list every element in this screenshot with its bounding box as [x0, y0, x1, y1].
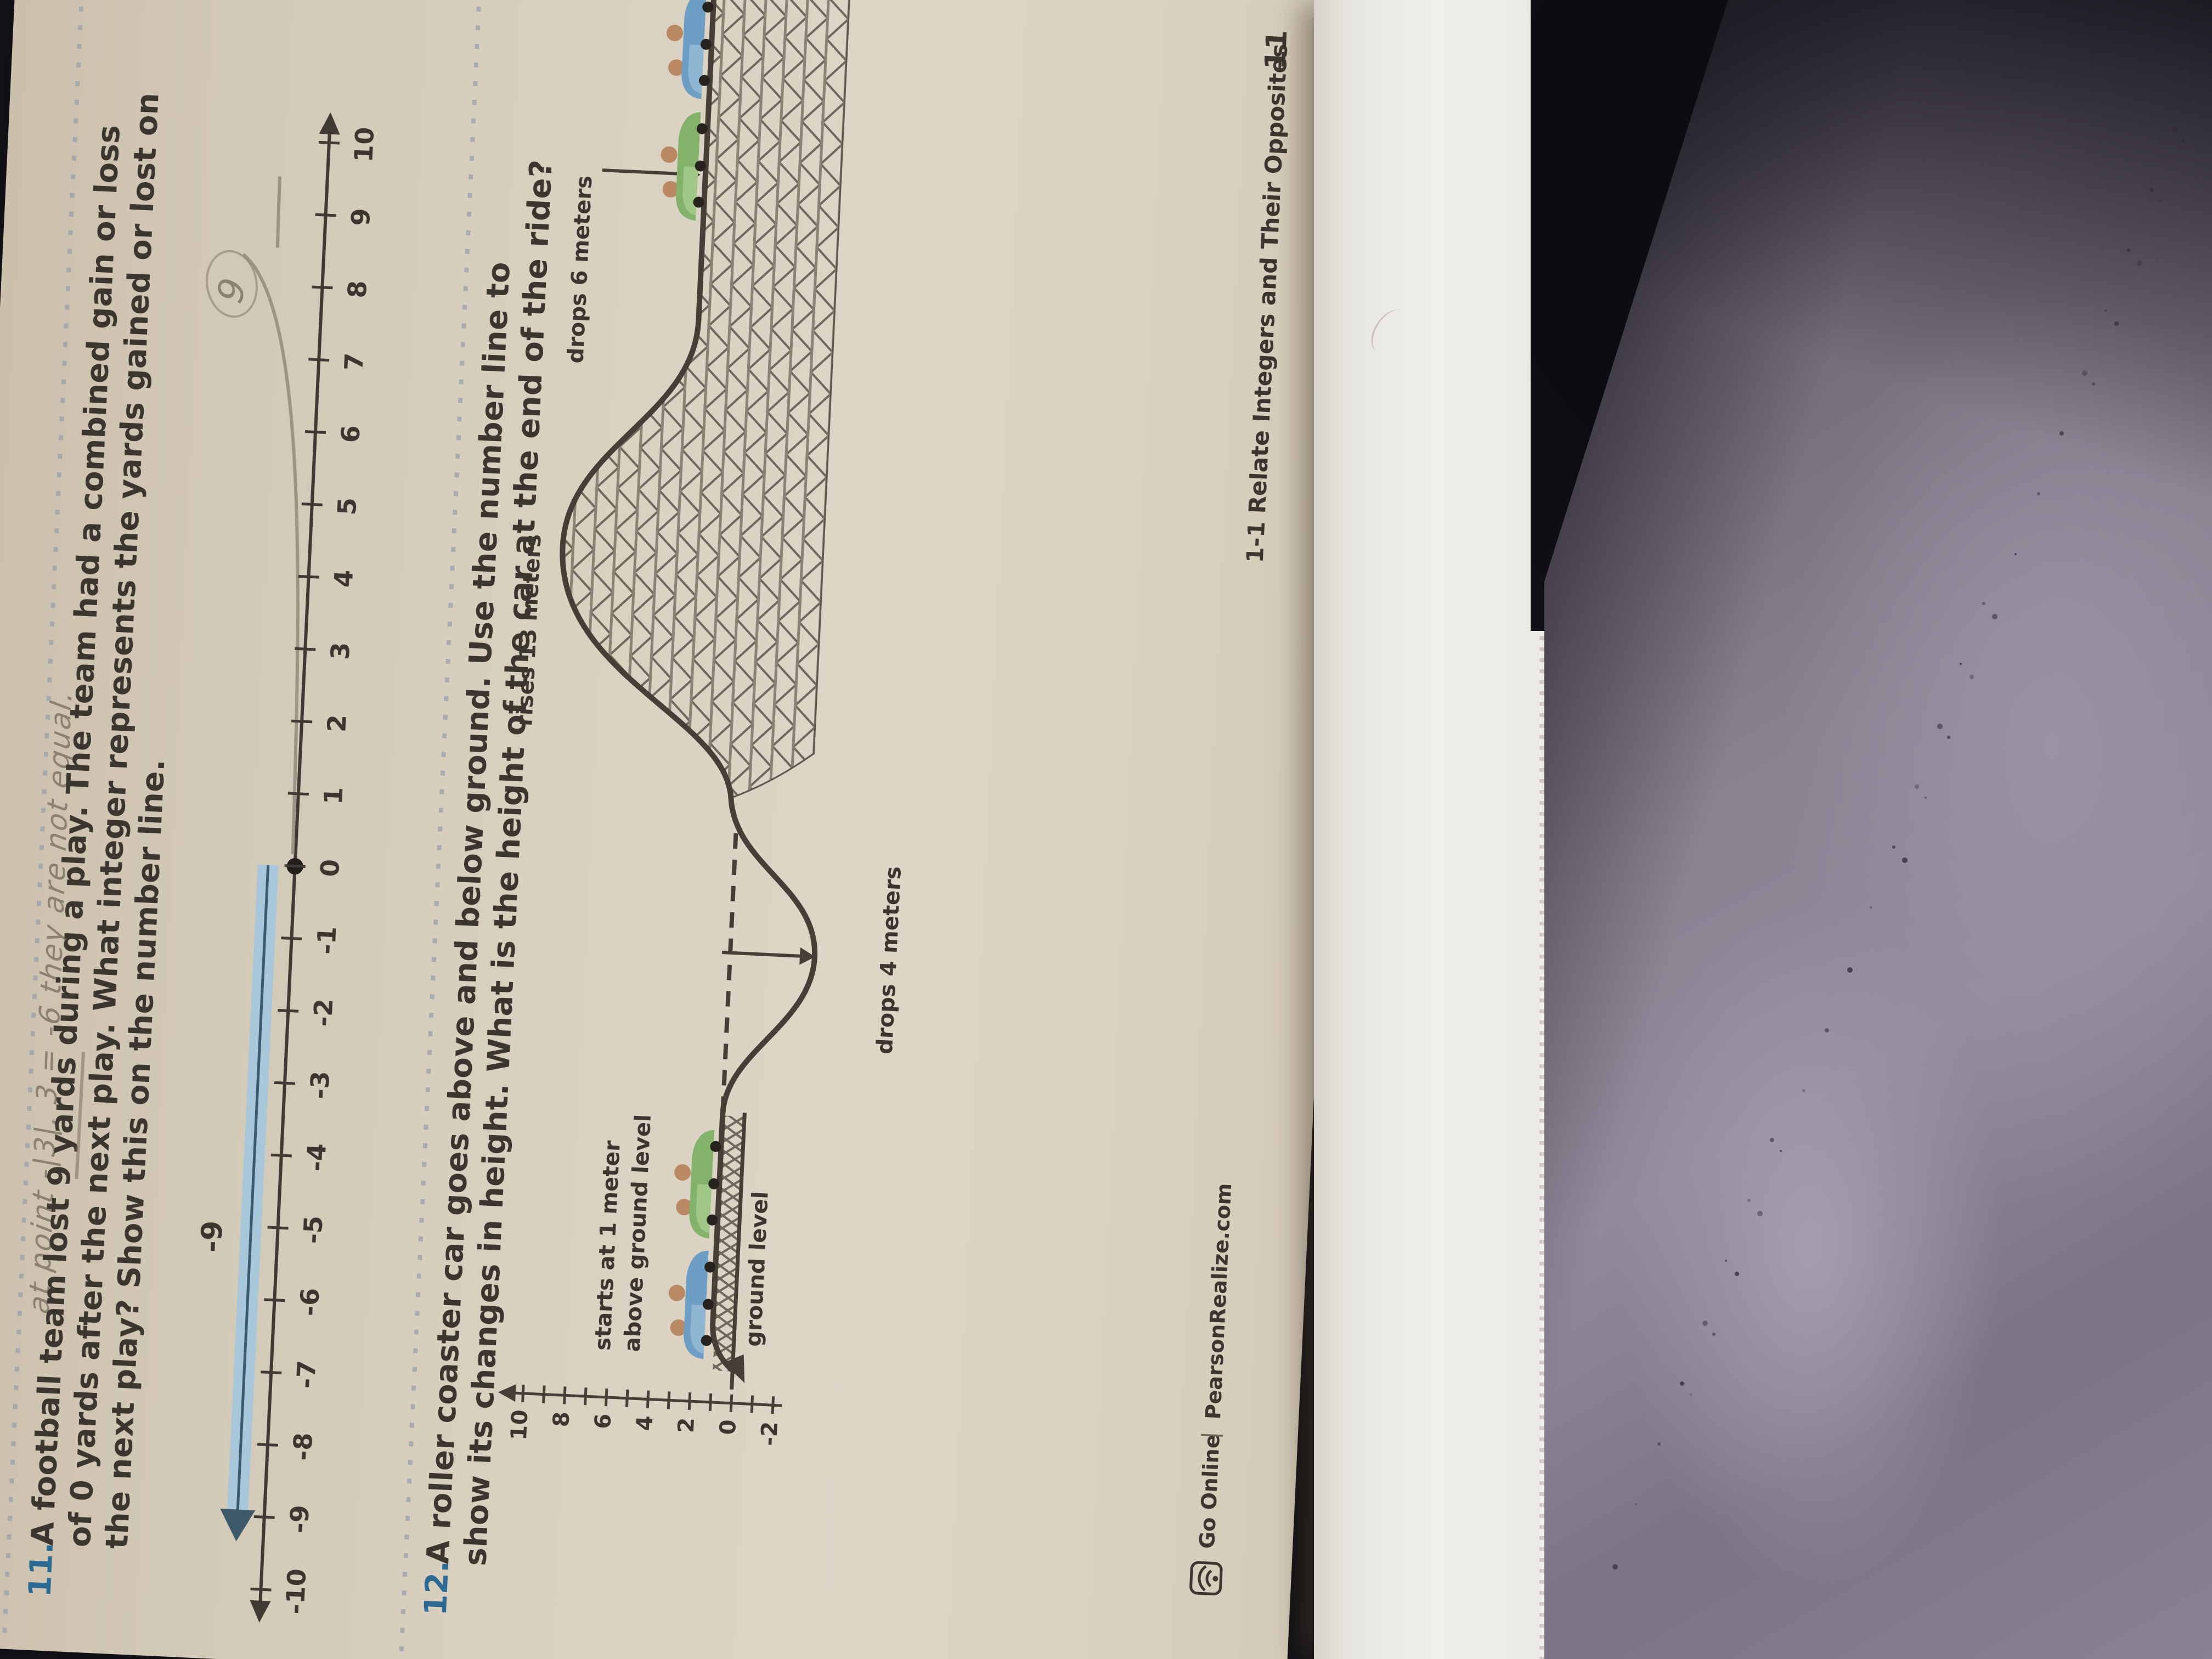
- fabric-speckle: [2082, 370, 2087, 376]
- coaster-car-green-end: [658, 110, 708, 221]
- fabric-speckle: [2114, 321, 2119, 326]
- roller-coaster-figure: [0, 0, 1370, 1659]
- coaster-car-blue-end: [663, 0, 714, 99]
- fabric-speckle: [1690, 1393, 1692, 1396]
- coaster-car-green-start: [672, 1128, 722, 1239]
- figure-axis-label: 0: [714, 1419, 741, 1472]
- fabric-speckle: [2037, 492, 2040, 495]
- fabric-speckle: [1825, 1028, 1829, 1032]
- dashed-start-height-line: [723, 827, 736, 1111]
- fabric-speckle: [1937, 724, 1943, 729]
- photo-of-textbook-page: at point -|3|, 3 = -6 they are not equal…: [0, 0, 2212, 1659]
- white-binder-edge: [1314, 0, 1558, 1659]
- fabric-speckle: [1680, 1381, 1684, 1386]
- fabric-speckle: [1925, 797, 1927, 799]
- textbook-page: at point -|3|, 3 = -6 they are not equal…: [0, 0, 1370, 1659]
- fabric-speckle: [1712, 1333, 1716, 1336]
- fabric-speckle: [1725, 1260, 1727, 1262]
- fabric-speckle: [1657, 1442, 1661, 1446]
- fabric-speckle: [1635, 1503, 1637, 1505]
- fabric-speckle: [2059, 431, 2064, 436]
- fabric-speckle: [2092, 382, 2095, 386]
- fabric-speckle: [2149, 188, 2154, 192]
- fabric-speckle: [1780, 1150, 1782, 1152]
- fabric-speckle: [1960, 663, 1962, 665]
- fabric-speckle: [2127, 249, 2130, 252]
- figure-axis-label: 2: [672, 1417, 699, 1471]
- figure-axis: [509, 1393, 782, 1406]
- fabric-speckle: [1802, 1089, 1805, 1092]
- footer-divider: |: [1198, 1431, 1223, 1440]
- fabric-speckle: [1982, 602, 1985, 605]
- stray-hair: [1365, 302, 1417, 362]
- fabric-speckle: [2172, 127, 2177, 132]
- drops-6-arrow: [602, 170, 690, 174]
- page-number: 11: [1259, 29, 1294, 70]
- fabric-speckle: [1947, 736, 1950, 739]
- fabric-speckle: [1992, 614, 1997, 619]
- fabric-speckle: [1747, 1199, 1751, 1202]
- fabric-speckle: [1902, 857, 1908, 863]
- fabric-speckle: [2182, 139, 2185, 142]
- fabric-speckle: [2159, 200, 2162, 202]
- fabric-speckle: [1770, 1138, 1774, 1142]
- figure-axis-label: 8: [547, 1411, 574, 1465]
- fabric-speckle: [1757, 1211, 1763, 1216]
- coaster-car-blue-start: [665, 1249, 716, 1359]
- fabric-speckle: [1702, 1321, 1708, 1326]
- fabric-speckle: [1612, 1564, 1618, 1570]
- hill-lattice-structure: [551, 0, 855, 802]
- fabric-speckle: [1870, 906, 1872, 909]
- fabric-speckle: [2137, 261, 2142, 266]
- fabric-speckle: [1915, 785, 1919, 789]
- figure-axis-label: 6: [589, 1413, 616, 1467]
- drops-4-arrow: [722, 952, 804, 956]
- figure-axis-label: 4: [630, 1415, 658, 1469]
- go-online-wifi-icon: [1187, 1560, 1224, 1596]
- fabric-speckle: [2015, 553, 2017, 555]
- figure-axis-arrowhead-icon: [498, 1384, 516, 1402]
- lesson-code: 1-1: [1242, 521, 1271, 563]
- fabric-speckle: [1847, 967, 1853, 973]
- fabric-speckle: [1892, 845, 1895, 849]
- fabric-speckle: [1970, 675, 1974, 679]
- fabric-speckle: [1735, 1272, 1739, 1276]
- figure-axis-label: -2: [755, 1421, 782, 1475]
- figure-axis-label: 10: [505, 1409, 533, 1463]
- fabric-speckle: [2104, 309, 2107, 312]
